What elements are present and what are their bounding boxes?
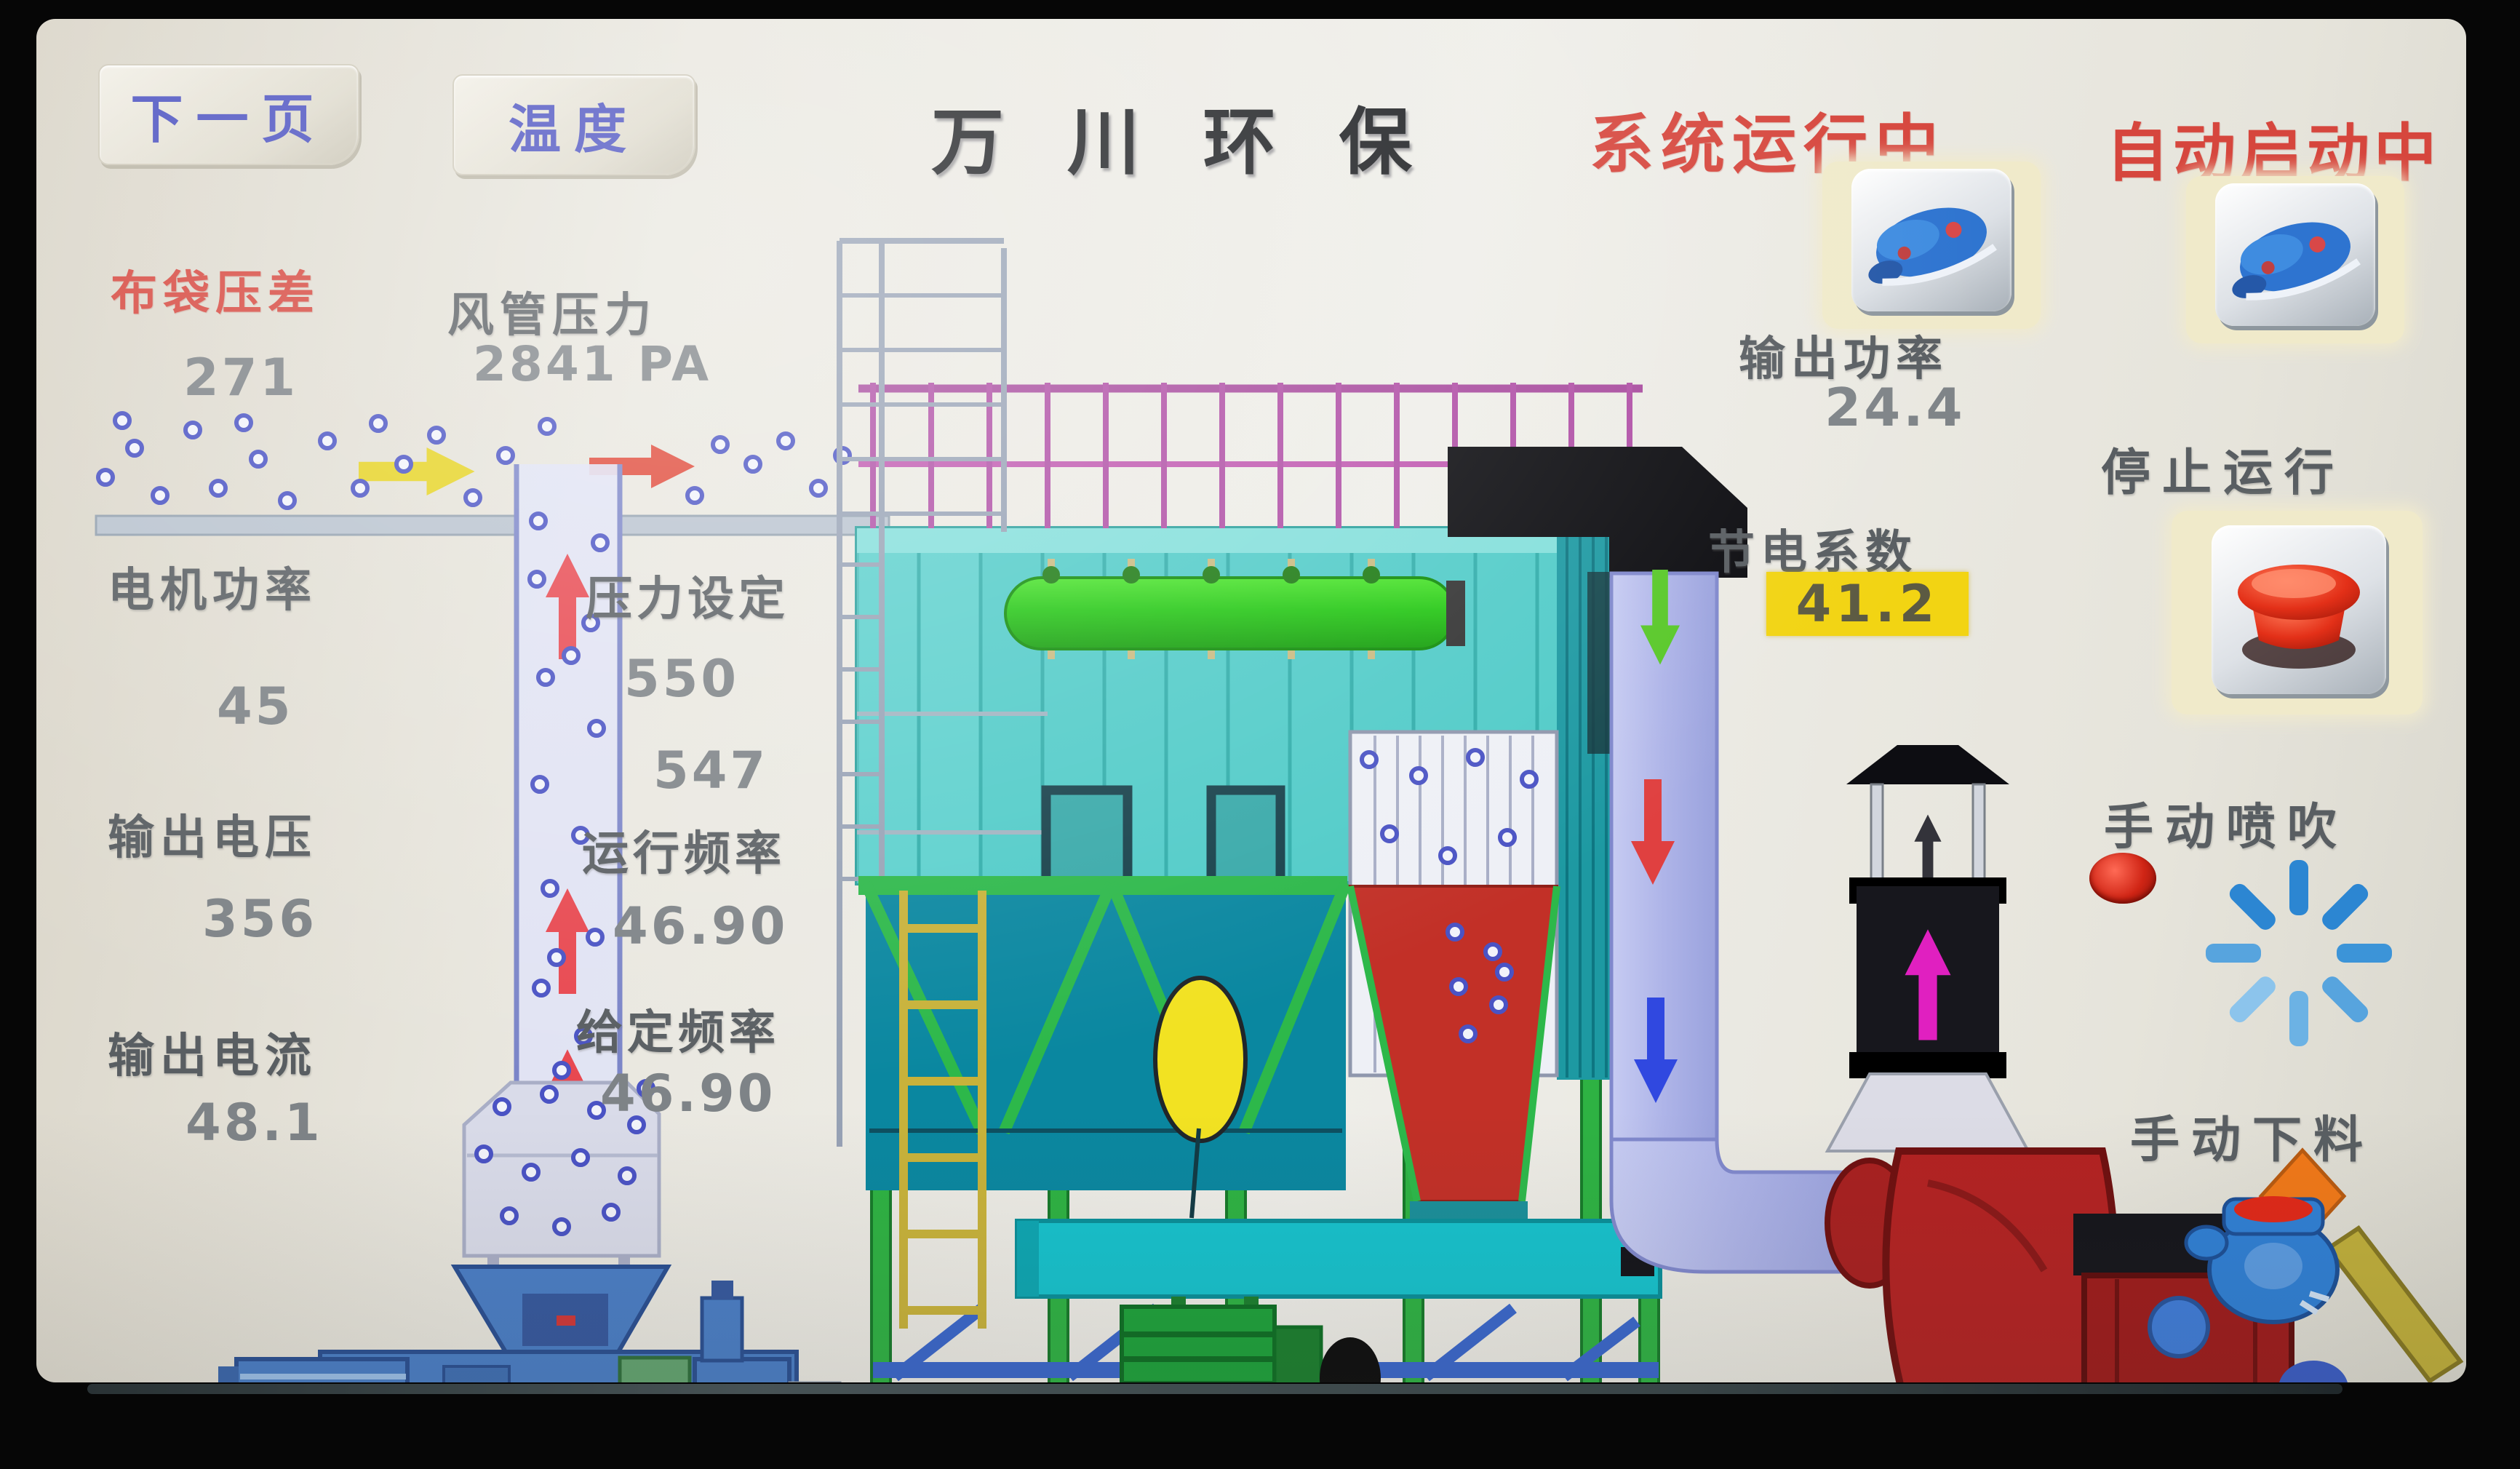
motor-power-label: 电机功率: [108, 553, 317, 620]
filter-bag-panel: [1350, 732, 1557, 1075]
run-frequency-label: 运行频率: [582, 816, 786, 883]
screw-compactor: [218, 1267, 840, 1382]
stack-rain-cap: [1846, 745, 2009, 784]
manual-blow-spinner[interactable]: [2190, 844, 2408, 1062]
rotary-valve-icon: [2179, 1179, 2361, 1328]
manual-discharge-label: 手动下料: [2130, 1099, 2375, 1171]
pump-icon: [1862, 186, 2001, 295]
run-pump-button[interactable]: [1851, 169, 2011, 311]
set-frequency-value: 46.90: [600, 1064, 775, 1123]
output-power-value: 24.4: [1825, 377, 1966, 438]
temperature-button[interactable]: 温度: [452, 74, 695, 175]
bag-pressure-label: 布袋压差: [111, 256, 320, 323]
access-door: [1211, 790, 1280, 936]
emergency-stop-button[interactable]: [2212, 525, 2386, 694]
pulse-manifold: [1005, 559, 1465, 659]
bezel-edge: [87, 1384, 2342, 1394]
plant-schematic: [36, 19, 2466, 1382]
emergency-stop-icon: [2222, 537, 2375, 682]
hmi-photo: 下一页 温度 万 川 环 保 系统运行中 自动启动中 布袋压差 271 风管压力…: [0, 0, 2520, 1469]
output-current-label: 输出电流: [108, 1019, 317, 1086]
output-voltage-label: 输出电压: [108, 800, 317, 867]
output-current-value: 48.1: [186, 1093, 323, 1152]
hmi-screen: 下一页 温度 万 川 环 保 系统运行中 自动启动中 布袋压差 271 风管压力…: [36, 19, 2466, 1382]
manual-discharge-button[interactable]: [2179, 1179, 2361, 1328]
access-door: [1046, 790, 1128, 936]
saving-factor-value: 41.2: [1766, 572, 1969, 636]
ash-conveyor: [1017, 1221, 1660, 1382]
page-title: 万 川 环 保: [931, 83, 1430, 188]
exhaust-duct: [1611, 570, 1859, 1272]
baghouse-body: [857, 528, 1660, 1080]
ash-hoppers: [858, 876, 1557, 1220]
run-frequency-value: 46.90: [613, 896, 788, 956]
yellow-ladder: [904, 891, 982, 1329]
next-page-button[interactable]: 下一页: [98, 64, 359, 165]
pressure-actual-value: 547: [653, 741, 768, 800]
full-ash-hopper: [1350, 886, 1557, 1201]
duct-pressure-value: 2841 PA: [473, 336, 711, 392]
set-frequency-label: 给定频率: [576, 995, 780, 1062]
motor-power-value: 45: [217, 677, 293, 736]
stop-run-label: 停止运行: [2101, 432, 2345, 504]
screen-glare: [36, 19, 2466, 1382]
outlet-elbow: [1448, 447, 1747, 754]
auto-pump-button[interactable]: [2215, 183, 2375, 326]
baghouse-legs: [872, 870, 1659, 1382]
duct-pressure-label: 风管压力: [447, 278, 657, 345]
sight-glass: [1155, 978, 1245, 1141]
access-ladder: [840, 241, 1004, 1147]
output-voltage-value: 356: [202, 889, 317, 949]
pressure-setting-value: 550: [624, 649, 739, 709]
fan-scroll: [1886, 1151, 2116, 1382]
fan-inlet: [1827, 1161, 1912, 1286]
silencer: [1857, 886, 1999, 1074]
bag-pressure-value: 271: [183, 348, 298, 407]
pump-icon: [2226, 200, 2364, 309]
roof-handrail: [858, 383, 1643, 528]
spray-spinner-icon: [2190, 844, 2408, 1062]
inlet-duct: [96, 413, 889, 535]
blow-led-indicator: [2089, 853, 2156, 904]
pressure-setting-label: 压力设定: [586, 562, 789, 629]
